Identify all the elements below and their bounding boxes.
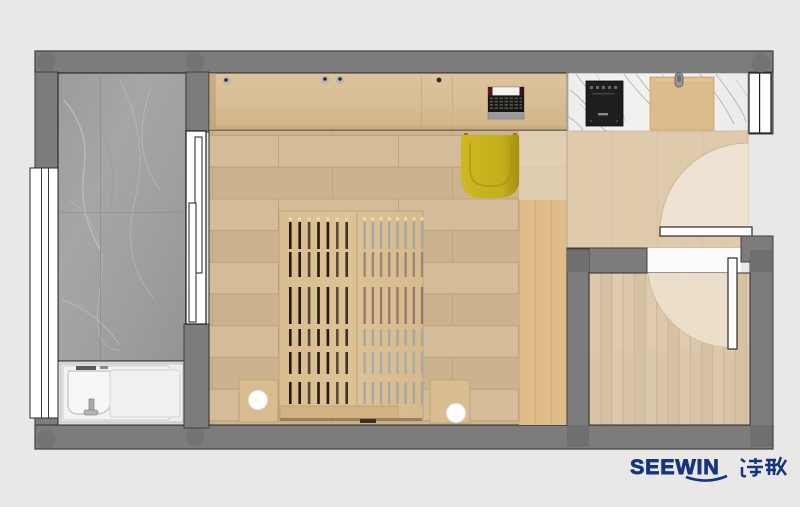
svg-text:SEEWIN: SEEWIN [630, 455, 720, 479]
